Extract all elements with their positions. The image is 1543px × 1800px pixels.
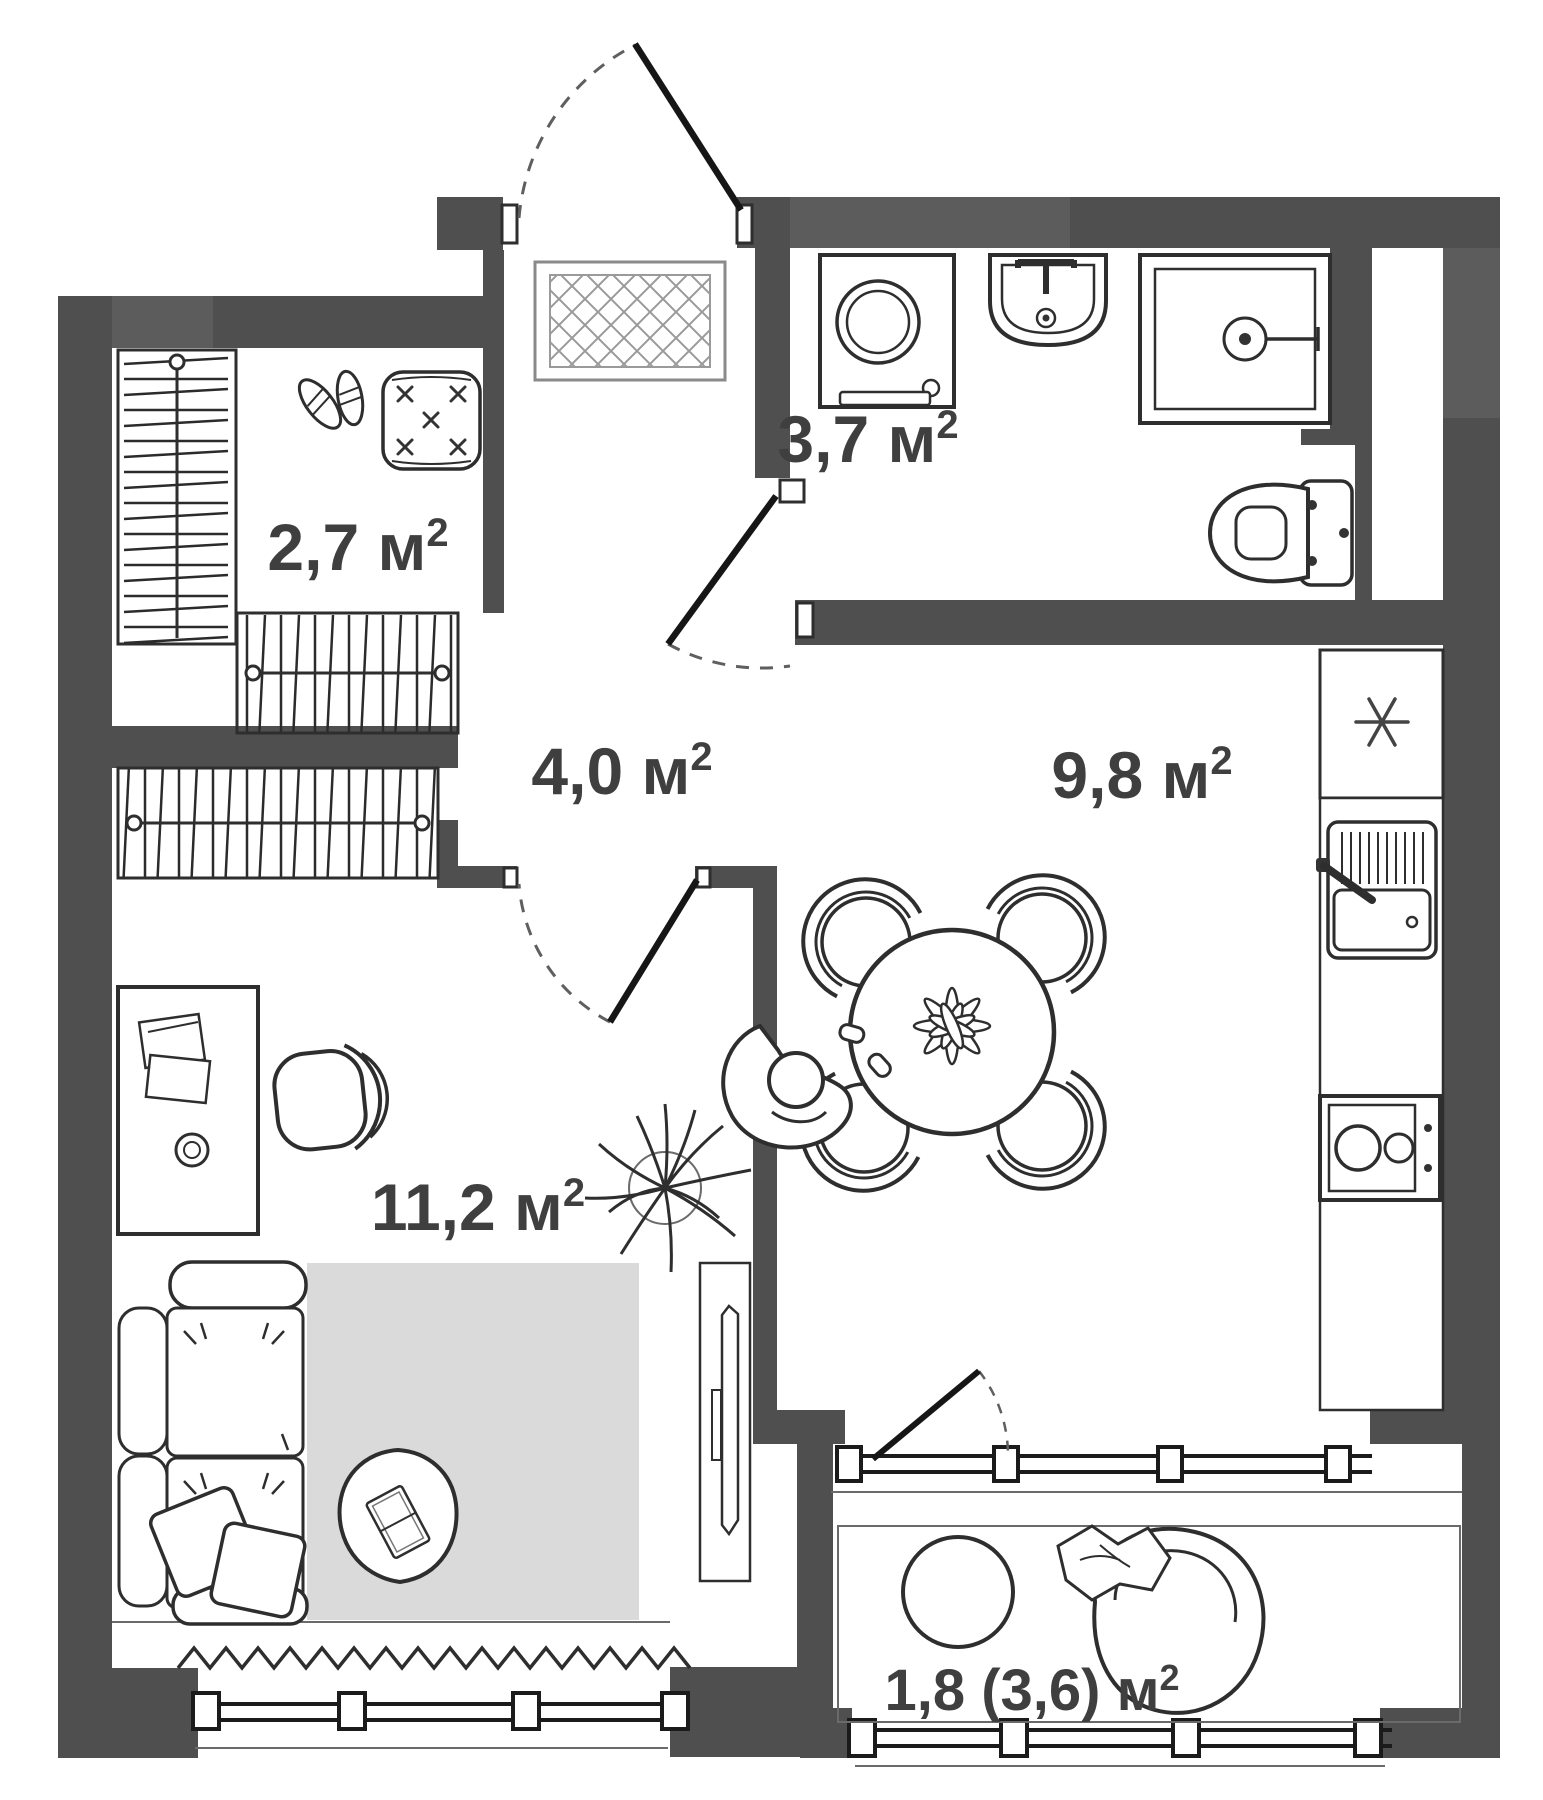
living-door-leaf [610,880,697,1022]
balcony-bottom-mullion [1173,1720,1199,1756]
shoes-icon [292,369,367,435]
office-chair-icon [271,1041,393,1156]
room-label-kitchen: 9,8 м2 [1051,738,1232,812]
coffee-table-icon [340,1450,457,1582]
wall-top-exterior-light [790,197,1070,248]
balcony-door-swing-arc [979,1371,1008,1458]
living-window-mullion [339,1693,365,1729]
bathroom-door-strike-plate [797,603,813,637]
room-label-bathroom: 3,7 м2 [777,402,958,476]
living-door-swing-arc [519,884,610,1022]
room-label-balcony: 1,8 (3,6) м2 [884,1657,1179,1723]
living-door-hinge-plate [697,868,710,887]
balcony-door-leaf [873,1371,979,1459]
sofa-icon [119,1262,307,1624]
balcony-bottom-mullion [1355,1720,1381,1756]
balcony-window-mullion [837,1447,861,1481]
wall-right-exterior [1443,248,1500,1410]
toilet-icon [1210,481,1352,585]
wall-toilet-niche-top [1301,429,1372,445]
washing-machine-icon [820,255,954,407]
living-window-mullion [513,1693,539,1729]
floor-plan-page: 2,7 м2 3,7 м2 4,0 м2 9,8 м2 11,2 м2 1,8 … [0,0,1543,1800]
tv-console-icon [700,1263,750,1581]
doormat-icon [535,262,725,380]
coat-rack-icon [118,350,236,644]
sofa-pillow-icon [209,1521,306,1618]
balcony-bottom-mullion [849,1720,875,1756]
wall-balcony-divider-left [753,1410,845,1444]
wall-balcony-bottom-right-block [1380,1708,1500,1758]
balcony-window-mullion [1158,1447,1182,1481]
wardrobe-hallway-icon [118,768,438,878]
wall-bathroom-bottom [795,600,1500,645]
cooktop-icon [1320,1096,1440,1200]
wall-balcony-divider-right [1370,1410,1500,1444]
entrance-door-leaf [635,44,741,210]
wall-toilet-niche-right [1355,445,1372,600]
bathroom-door-hinge-plate [780,480,804,502]
wardrobe-entry-icon [237,613,458,733]
refrigerator-icon [1320,650,1443,798]
wall-balcony-right [1462,1443,1500,1713]
balcony-window-mullion [994,1447,1018,1481]
balcony-window-mullion [1326,1447,1350,1481]
living-door-hinge-plate [504,868,517,887]
balcony-table-icon [903,1537,1013,1647]
room-label-living-room: 11,2 м2 [371,1170,585,1244]
balcony-bottom-mullion [1001,1720,1027,1756]
entrance-door-swing-arc [519,45,635,218]
wall-shower-right [1330,248,1372,429]
room-label-entry: 2,7 м2 [267,510,448,584]
living-window-mullion [662,1693,688,1729]
entrance-door-hinge-plate [502,205,517,243]
bathroom-door-swing-arc [668,644,790,668]
dining-set [723,850,1130,1217]
house-plant-icon [585,1104,751,1272]
washbasin-icon [990,255,1106,345]
pouf-icon [383,372,480,469]
wall-balcony-bottom-left-stub [800,1708,852,1758]
curtain-icon [178,1648,690,1668]
shower-cabin-icon [1140,255,1330,423]
wall-kitchen-living-divider [753,888,777,1410]
wall-entrance-left-jamb [437,197,503,250]
area-rug [307,1263,639,1620]
wall-right-exterior-light [1443,248,1500,418]
living-room-furniture [118,987,751,1668]
wall-bottom-left-block [58,1668,198,1758]
wall-left-exterior [58,296,112,1670]
living-window-mullion [193,1693,219,1729]
wall-bottom-mid-block [670,1667,806,1757]
kitchen-sink-icon [1316,822,1436,958]
bathroom-door-leaf [668,496,776,644]
desk-icon [118,987,258,1234]
floor-plan: 2,7 м2 3,7 м2 4,0 м2 9,8 м2 11,2 м2 1,8 … [0,0,1543,1800]
room-label-hallway: 4,0 м2 [531,734,712,808]
table-centerpiece-icon [914,988,990,1064]
